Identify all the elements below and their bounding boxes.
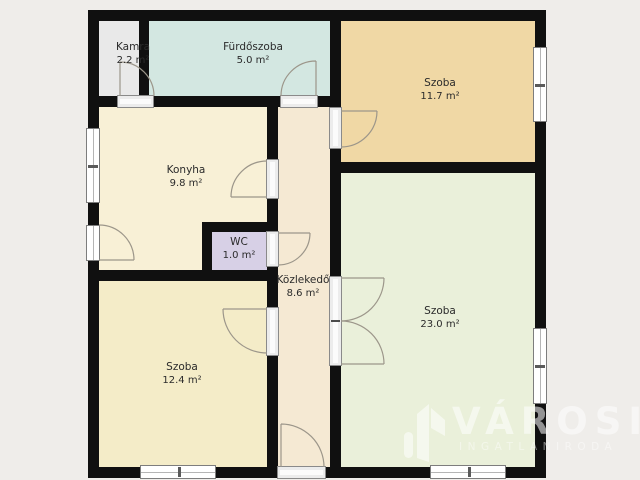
room-name: Kamra [116, 41, 150, 54]
door-sill-konyha [266, 159, 279, 199]
room-area: 12.4 m² [162, 374, 201, 387]
door-sill-wc [266, 231, 279, 267]
sill-groove [120, 99, 151, 104]
sill-groove [270, 234, 275, 264]
logo-flag [431, 408, 445, 436]
agency-logo-icon [402, 398, 450, 462]
sill-groove [270, 162, 275, 196]
entrance-door-sill [277, 466, 326, 479]
room-area: 2.2 m² [116, 54, 150, 67]
door-sill-szoba-upper [329, 107, 342, 149]
window-mullion [535, 365, 545, 368]
door-sill-double-door [329, 276, 342, 366]
window-szoba-large-bottom [430, 465, 506, 479]
room-name: Fürdőszoba [223, 41, 283, 54]
window-szoba-lower-bottom [140, 465, 216, 479]
room-name: WC [223, 236, 256, 249]
room-name: Szoba [162, 361, 201, 374]
window-konyha-left [86, 128, 100, 203]
wall-hall-east [330, 21, 341, 467]
agency-tagline-text: INGATLANIRODA [459, 441, 617, 453]
window-mullion [178, 467, 181, 477]
room-name: Szoba [420, 77, 459, 90]
room-area: 9.8 m² [167, 177, 206, 190]
wall-wc-top [202, 222, 267, 232]
outer-wall-top [88, 10, 546, 21]
label-konyha: Konyha 9.8 m² [167, 164, 206, 190]
room-name: Szoba [420, 305, 459, 318]
door-sill-furdoszoba [280, 95, 318, 108]
label-wc: WC 1.0 m² [223, 236, 256, 262]
sill-groove [333, 110, 338, 146]
balcony-door-glass-konyha [86, 225, 100, 261]
window-szoba-large-right [533, 328, 547, 404]
label-szoba-upper: Szoba 11.7 m² [420, 77, 459, 103]
label-kozlekedo: Közlekedő 8.6 m² [277, 274, 330, 300]
logo-bar [404, 432, 413, 458]
sill-groove [283, 99, 315, 104]
room-area: 5.0 m² [223, 54, 283, 67]
window-midline [93, 226, 94, 260]
window-mullion [535, 84, 545, 87]
door-sill-szoba-lower [266, 307, 279, 356]
sill-groove [280, 470, 323, 475]
wall-szoba-upper-bottom [341, 162, 535, 173]
wall-konyha-bottom [99, 270, 278, 281]
room-area: 23.0 m² [420, 318, 459, 331]
window-mullion [468, 467, 471, 477]
agency-brand-text: VÁROSI [452, 400, 640, 443]
label-furdoszoba: Fürdőszoba 5.0 m² [223, 41, 283, 67]
logo-tower [417, 404, 429, 462]
label-szoba-lower: Szoba 12.4 m² [162, 361, 201, 387]
room-area: 1.0 m² [223, 249, 256, 262]
window-mullion [88, 165, 98, 168]
room-name: Konyha [167, 164, 206, 177]
room-area: 8.6 m² [277, 287, 330, 300]
room-area: 11.7 m² [420, 90, 459, 103]
window-szoba-upper-right [533, 47, 547, 122]
floor-plan-canvas: Kamra 2.2 m² Fürdőszoba 5.0 m² Szoba 11.… [0, 0, 640, 480]
room-name: Közlekedő [277, 274, 330, 287]
double-door-divider [331, 320, 340, 322]
label-kamra: Kamra 2.2 m² [116, 41, 150, 67]
sill-groove [270, 310, 275, 353]
door-sill-kamra [117, 95, 154, 108]
label-szoba-large: Szoba 23.0 m² [420, 305, 459, 331]
